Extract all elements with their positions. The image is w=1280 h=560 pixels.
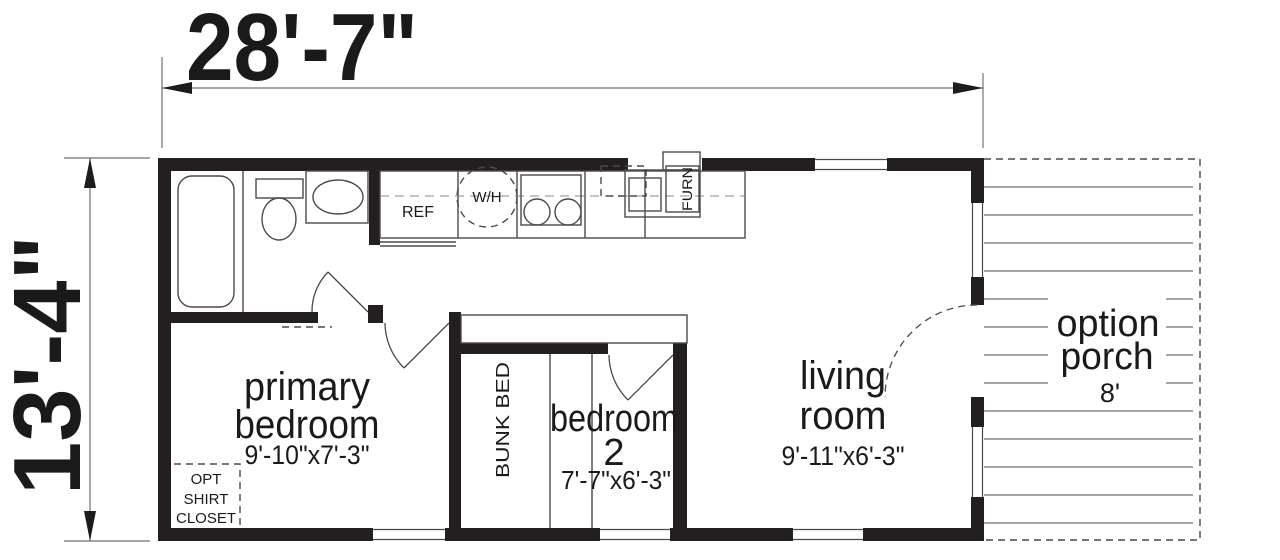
primary-bedroom-size-label: 9'-10"x7'-3" — [245, 440, 370, 470]
height-dimension-label: 13'-4" — [0, 235, 101, 495]
floor-plan-canvas: 28'-7" 13'-4" option porch 8 — [0, 0, 1280, 560]
closet-label-line3: CLOSET — [176, 510, 236, 527]
closet-label-line1: OPT — [191, 471, 222, 488]
living-room-label-line2: room — [800, 394, 887, 438]
bathroom-vanity — [306, 171, 368, 223]
living-room-size-label: 9'-11"x6'-3" — [782, 441, 905, 471]
width-dimension-label: 28'-7" — [186, 0, 418, 101]
bathroom-door-swing — [312, 272, 328, 312]
height-dimension: 13'-4" — [0, 158, 150, 541]
bathroom-door — [328, 272, 368, 312]
toilet — [262, 198, 296, 240]
primary-bedroom: OPT SHIRT CLOSET primary bedroom 9'-10"x… — [174, 327, 380, 528]
bunk-bed-label: BUNK BED — [493, 362, 513, 478]
exterior-door-swing — [885, 305, 977, 397]
arrowhead-right-icon — [953, 82, 983, 94]
refrigerator-label: REF — [402, 204, 434, 221]
bathroom — [178, 171, 368, 312]
toilet-tank — [256, 179, 303, 198]
primary-bedroom-door-swing — [385, 323, 404, 368]
living-room: living room 9'-11"x6'-3" — [782, 354, 905, 471]
water-heater-label: W/H — [472, 189, 501, 206]
arrowhead-up-icon — [84, 158, 96, 188]
porch: option porch 8' — [984, 159, 1200, 540]
floor-plan-page: 28'-7" 13'-4" option porch 8 — [0, 0, 1280, 560]
living-room-label-line1: living — [800, 354, 886, 398]
porch-label-line2: porch — [1061, 336, 1154, 378]
bedroom-2-door — [628, 355, 673, 400]
bathtub — [178, 176, 234, 307]
sink-bowl — [555, 199, 581, 225]
bedroom-2: BUNK BED bedroom 2 7'-7"x6'-3" — [493, 354, 678, 528]
arrowhead-down-icon — [84, 511, 96, 541]
bedroom-2-size-label: 7'-7"x6'-3" — [561, 465, 671, 495]
bathroom-sink — [313, 180, 363, 214]
furnace-label: FURN — [679, 167, 695, 211]
primary-bedroom-door — [404, 323, 449, 368]
bedroom-2-door-swing — [609, 355, 628, 400]
sink-bowl — [524, 199, 550, 225]
closet-label-line2: SHIRT — [184, 491, 229, 508]
porch-size-label: 8' — [1100, 378, 1120, 408]
wardrobe-shelf — [461, 315, 687, 343]
width-dimension: 28'-7" — [162, 0, 983, 148]
